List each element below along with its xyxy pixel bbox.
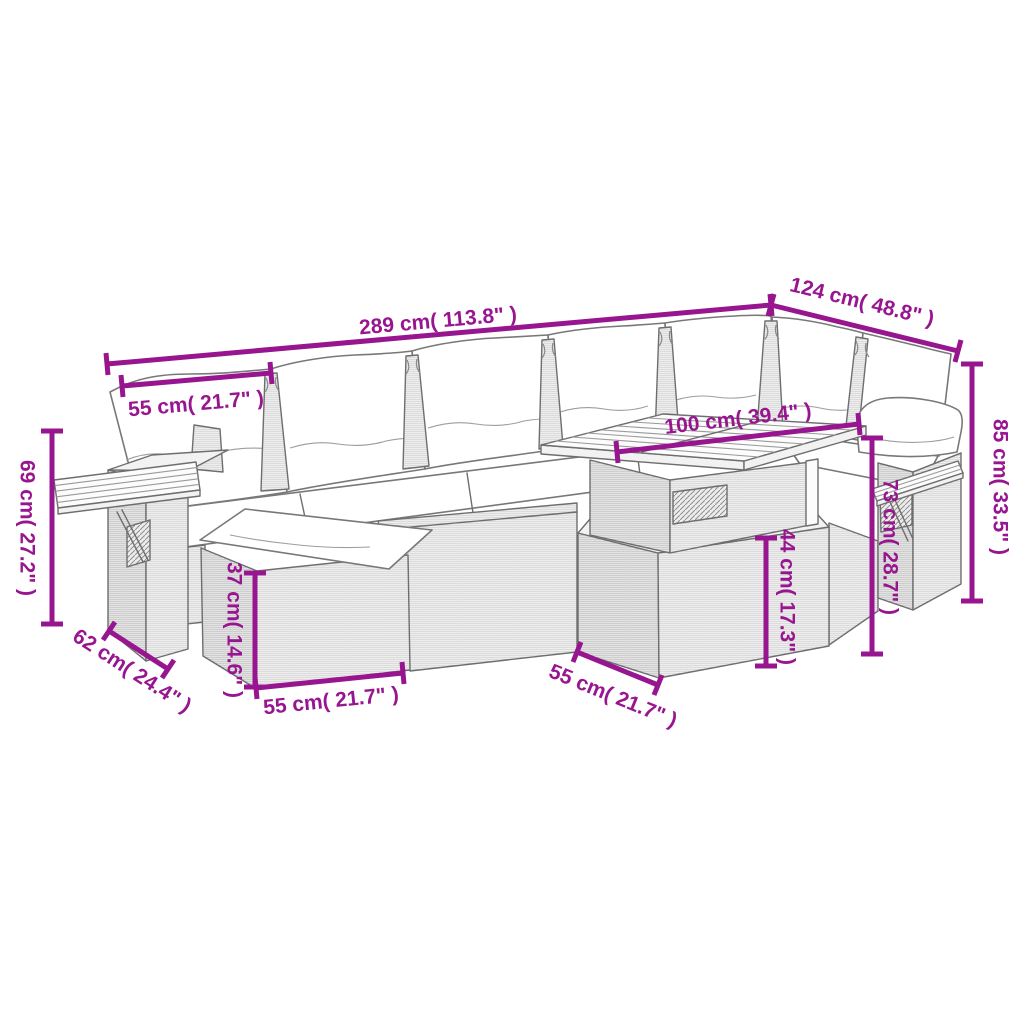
dim-left-arm-height-69 xyxy=(41,431,63,624)
dim-label-overall-height: 85 cm( 33.5" ) xyxy=(990,419,1011,555)
dim-label-left-arm-height: 69 cm( 27.2" ) xyxy=(17,460,38,596)
dim-label-ottoman-height: 37 cm( 14.6" ) xyxy=(224,562,245,698)
dim-label-right-panel-height: 73 cm( 28.7" ) xyxy=(880,479,901,615)
product-dimension-diagram: 289 cm( 113.8" ) 124 cm( 48.8" ) 85 cm( … xyxy=(0,0,1024,1024)
dim-label-table-height: 44 cm( 17.3" ) xyxy=(777,529,798,665)
dim-overall-height-85 xyxy=(961,364,983,601)
sofa-set-line-drawing xyxy=(0,0,1024,1024)
